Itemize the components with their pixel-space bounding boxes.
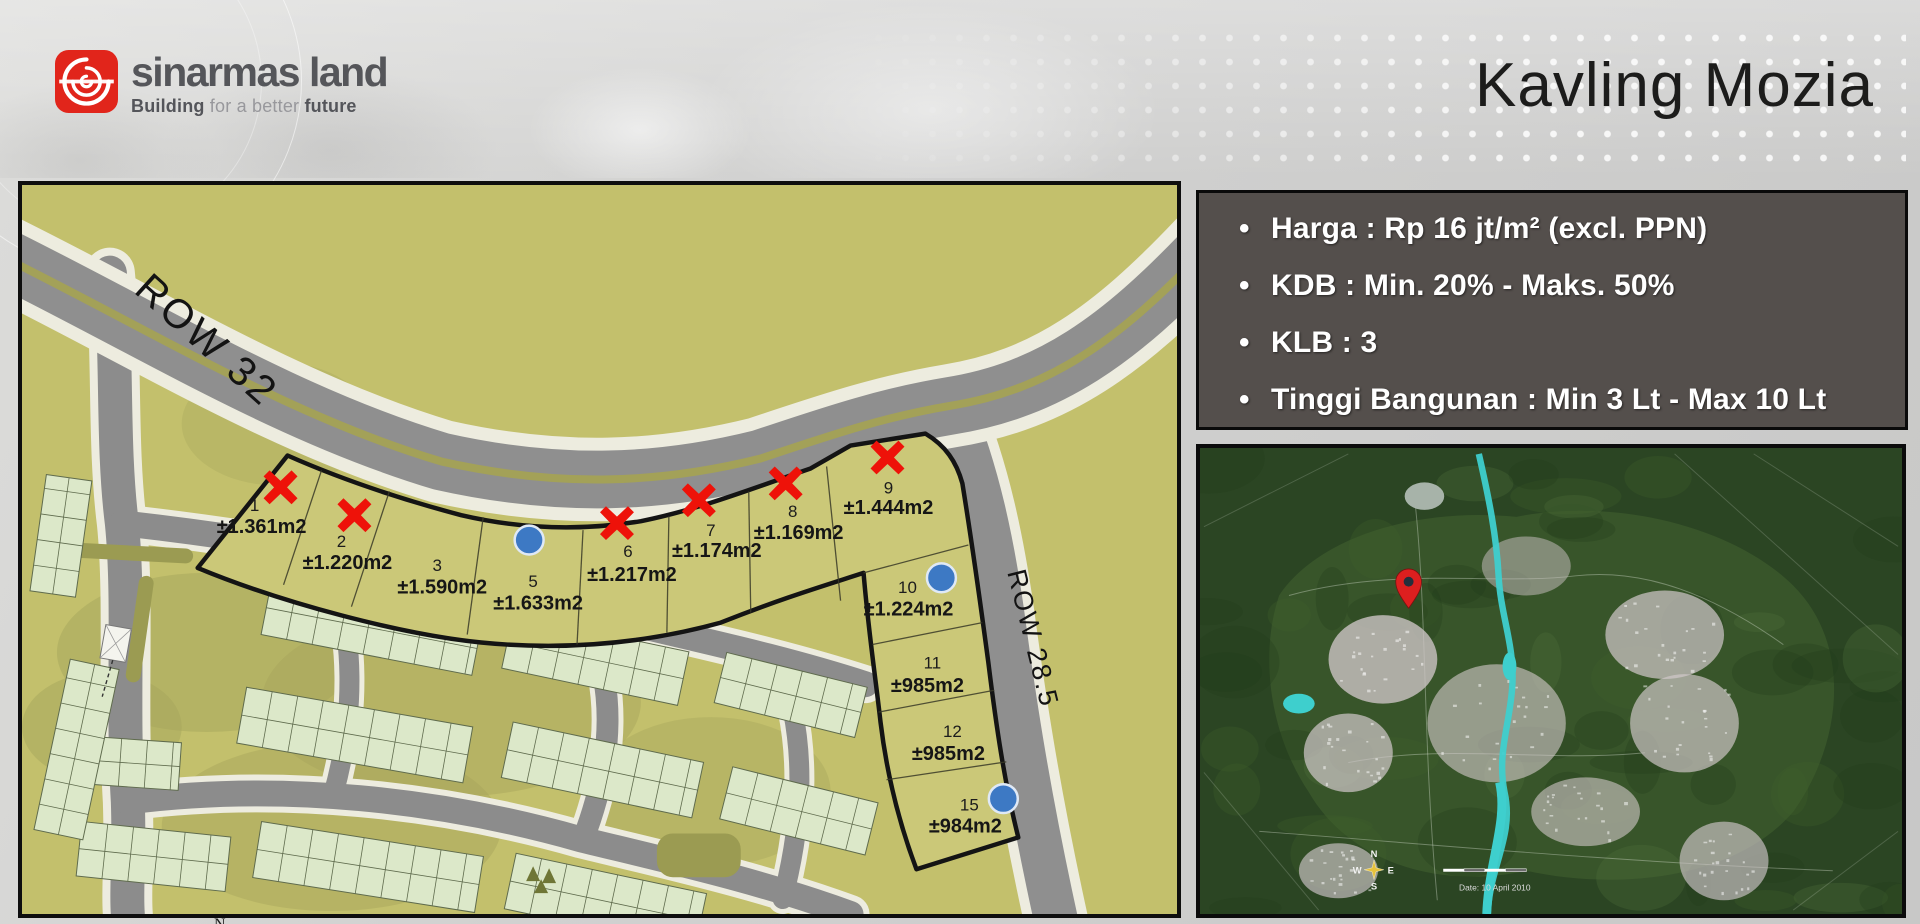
tagline-bold-tail: future [304, 96, 356, 116]
slide: sinarmas land Building for a better futu… [0, 0, 1920, 924]
plot-number: 8 [788, 502, 797, 521]
info-item-harga: • Harga : Rp 16 jt/m² (excl. PPN) [1239, 200, 1895, 257]
lake [1283, 694, 1315, 714]
plot-area: ±1.220m2 [303, 552, 393, 574]
plot-number: 15 [960, 796, 979, 815]
map-date-label: Date: 10 April 2010 [1459, 882, 1531, 892]
plot-area: ±1.590m2 [397, 577, 487, 599]
bullet-icon: • [1239, 269, 1271, 303]
plot-number: 3 [433, 556, 442, 575]
plot-number: 6 [623, 542, 632, 561]
info-text: Tinggi Bangunan : Min 3 Lt - Max 10 Lt [1271, 383, 1826, 417]
info-text: KDB : Min. 20% - Maks. 50% [1271, 269, 1675, 303]
river-bulge [1503, 652, 1517, 680]
info-panel: • Harga : Rp 16 jt/m² (excl. PPN) • KDB … [1196, 190, 1908, 430]
booked-circle-marker [515, 526, 544, 555]
satellite-map: N W E S Date: 10 April 2010 [1200, 448, 1902, 914]
plot-area: ±1.169m2 [754, 522, 844, 544]
plot-number: 12 [943, 722, 962, 741]
plot-area: ±985m2 [891, 675, 964, 697]
plot-number: 11 [924, 653, 942, 672]
compass-e: E [1388, 866, 1394, 876]
brand-tagline: Building for a better future [131, 96, 387, 117]
bullet-icon: • [1239, 212, 1271, 246]
plot-number: 2 [337, 532, 346, 551]
plot-area: ±1.217m2 [587, 564, 677, 586]
plot-area: ±1.633m2 [493, 593, 583, 615]
info-text: Harga : Rp 16 jt/m² (excl. PPN) [1271, 212, 1707, 246]
plot-area: ±1.444m2 [844, 497, 934, 519]
plot-number: 5 [528, 572, 537, 591]
plot-number: 7 [706, 521, 715, 540]
info-item-tinggi: • Tinggi Bangunan : Min 3 Lt - Max 10 Lt [1239, 371, 1895, 428]
plot-area: ±1.361m2 [217, 516, 307, 538]
plot-number: 1 [250, 496, 259, 515]
tagline-light-mid: for a better [210, 96, 299, 116]
pond [1405, 482, 1445, 510]
compass-s: S [1371, 881, 1377, 891]
brand-name: sinarmas land [131, 51, 387, 93]
plot-area: ±1.174m2 [672, 540, 762, 562]
plot-number: 10 [898, 578, 917, 597]
north-indicator: N [214, 916, 226, 924]
scale-bar [1443, 869, 1526, 872]
sinarmas-logo-icon [55, 50, 118, 113]
info-item-klb: • KLB : 3 [1239, 314, 1895, 371]
info-text: KLB : 3 [1271, 326, 1377, 360]
tagline-bold-lead: Building [131, 96, 205, 116]
page-title: Kavling Mozia [1475, 50, 1874, 121]
plot-area: ±1.224m2 [864, 599, 954, 621]
info-item-kdb: • KDB : Min. 20% - Maks. 50% [1239, 257, 1895, 314]
plot-area: ±985m2 [912, 743, 985, 765]
site-plan-map: 1 ±1.361m2 2 ±1.220m2 3 ±1.590m2 5 ±1.63… [22, 185, 1177, 914]
bullet-icon: • [1239, 383, 1271, 417]
bullet-icon: • [1239, 326, 1271, 360]
booked-circle-marker [989, 784, 1018, 813]
company-logo: sinarmas land Building for a better futu… [55, 50, 387, 117]
plot-area: ±984m2 [929, 815, 1002, 837]
compass-w: W [1353, 866, 1362, 876]
plot-number: 9 [884, 478, 893, 497]
compass-n: N [1371, 849, 1378, 859]
location-map-panel: N W E S Date: 10 April 2010 [1196, 444, 1906, 918]
booked-circle-marker [927, 563, 956, 592]
site-plan-panel: 1 ±1.361m2 2 ±1.220m2 3 ±1.590m2 5 ±1.63… [18, 181, 1181, 918]
